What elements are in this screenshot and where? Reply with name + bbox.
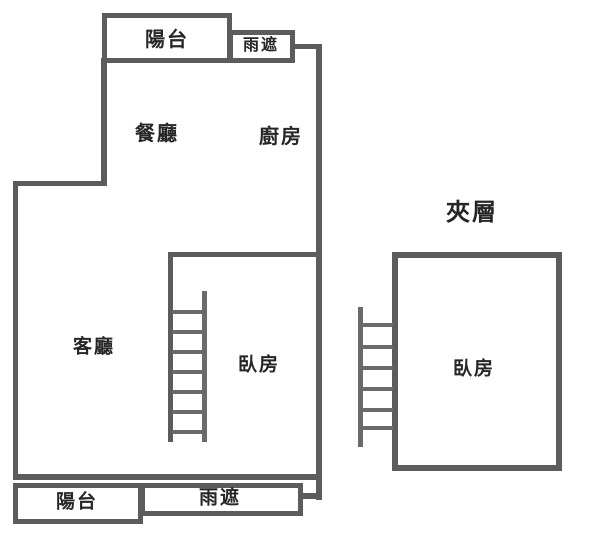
rain-shield-top-label: 雨遮 [243, 38, 279, 54]
balcony-top-label: 陽台 [145, 30, 189, 50]
living-room-label: 客廳 [73, 338, 115, 357]
rain-shield-bottom-label: 雨遮 [199, 489, 241, 508]
wall-top-connector [291, 44, 322, 49]
ladder-rung [172, 330, 204, 334]
ladder-rung [362, 366, 393, 370]
ladder-rung [362, 345, 393, 349]
wall-left-lower [13, 181, 18, 480]
ladder-rung [172, 370, 204, 374]
wall-right [316, 44, 322, 500]
ladder-rung [172, 350, 204, 354]
bedroom-label: 臥房 [238, 356, 280, 375]
wall-step [13, 181, 106, 186]
floor-plan: 陽台 雨遮 餐廳 廚房 客廳 臥房 陽台 雨遮 夾層 臥房 [0, 0, 600, 559]
wall-left-upper [101, 58, 107, 186]
ladder-rung [362, 426, 393, 430]
ladder-rung [362, 387, 393, 391]
ladder-rung [172, 410, 204, 414]
ladder-rung [172, 310, 204, 314]
ladder-rung [172, 430, 204, 434]
balcony-bottom-label: 陽台 [56, 493, 98, 512]
dining-room-label: 餐廳 [135, 124, 179, 144]
mezzanine-title-label: 夾層 [446, 201, 498, 225]
bedroom-wall-top [168, 252, 321, 257]
ladder-rung [362, 323, 393, 327]
ladder-rung [172, 390, 204, 394]
kitchen-label: 廚房 [259, 127, 303, 147]
wall-bottom [13, 474, 322, 480]
mezzanine-bedroom-label: 臥房 [453, 360, 495, 379]
ladder-rung [362, 408, 393, 412]
